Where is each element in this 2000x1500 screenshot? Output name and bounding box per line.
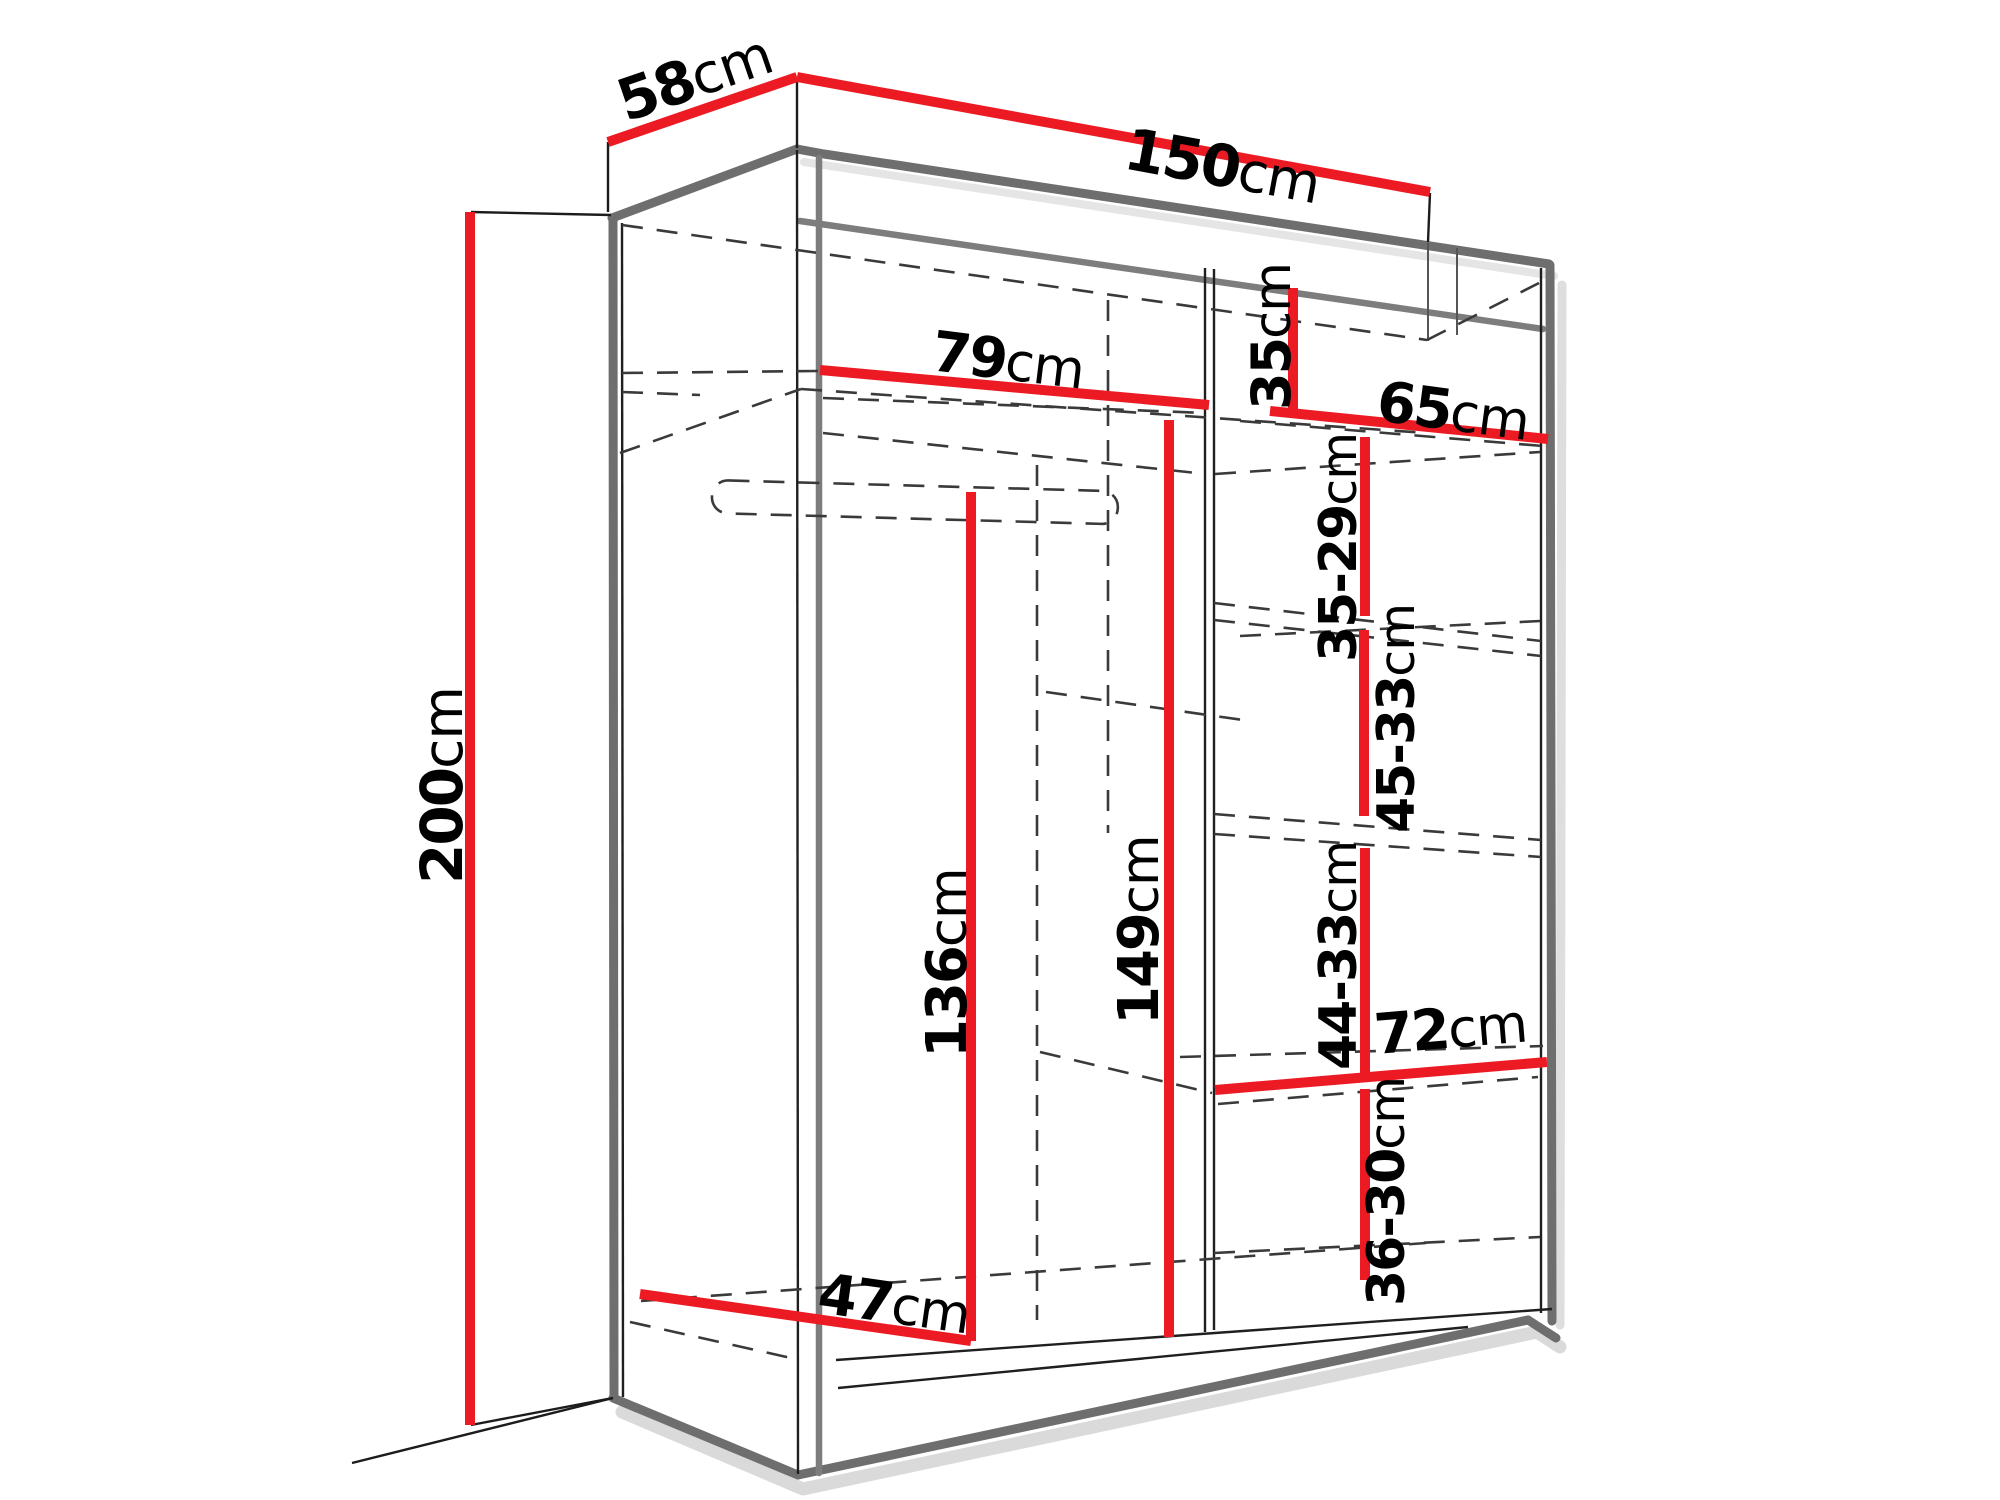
shelf-3-bottom (1214, 834, 1541, 857)
top-shelf-bottom-right (1215, 452, 1540, 474)
dimension-label-left-section-width: 79cm (928, 319, 1088, 402)
floor-side-hidden-edge (630, 1322, 800, 1360)
diagram-canvas: 58cm150cm200cm79cm35cm65cm35-29cm45-33cm… (0, 0, 2000, 1500)
right-shadow (1560, 285, 1562, 1325)
side-front-edge (613, 218, 614, 1398)
top-front-edge (800, 221, 1543, 329)
dimension-label-height-left: 200cm (408, 687, 476, 884)
top-shelf-bottom-left (823, 433, 1206, 474)
dimension-label-center-height: 149cm (1107, 835, 1172, 1025)
shelf-2-back-extension (1046, 692, 1250, 721)
wardrobe-dimension-diagram: 58cm150cm200cm79cm35cm65cm35-29cm45-33cm… (0, 0, 2000, 1500)
floor-back-edge (641, 1243, 1426, 1301)
bottom-front-edge (798, 1320, 1528, 1475)
side-top-edge (612, 149, 797, 218)
dimension-label-interior-depth: 47cm (814, 1262, 974, 1348)
height-bottom-extension (471, 1398, 613, 1425)
room-floor-line (352, 1398, 613, 1463)
dimension-label-shelf-gap-3: 44-33cm (1309, 841, 1369, 1070)
side-bottom-edge (613, 1398, 798, 1475)
top-shelf-side-line-a (622, 371, 818, 373)
shelf-4-left-extension (1040, 1052, 1212, 1093)
hanging-rod (712, 480, 1119, 524)
dimension-label-shelf-gap-2: 45-33cm (1367, 604, 1427, 833)
front-right-edge (1550, 265, 1552, 1321)
dimension-label-left-hanging-height: 136cm (915, 868, 980, 1058)
dimension-label-shelf-gap-1: 35-29cm (1309, 433, 1369, 662)
dimension-label-right-section-width: 65cm (1373, 369, 1533, 453)
top-shelf-side-line-b (622, 392, 700, 395)
dimension-label-shelf-gap-4: 36-30cm (1357, 1077, 1417, 1306)
height-top-extension (471, 212, 611, 215)
front-left-corner-line (797, 150, 798, 1474)
top-shelf-back-diagonal (620, 389, 801, 453)
dimension-label-right-top-shelf-height: 35cm (1240, 263, 1303, 410)
side-front-inner-line (622, 223, 623, 1397)
width-right-extension (1428, 193, 1430, 242)
dimension-label-depth-top: 58cm (608, 19, 780, 135)
dimension-label-bottom-right-width: 72cm (1372, 990, 1530, 1068)
